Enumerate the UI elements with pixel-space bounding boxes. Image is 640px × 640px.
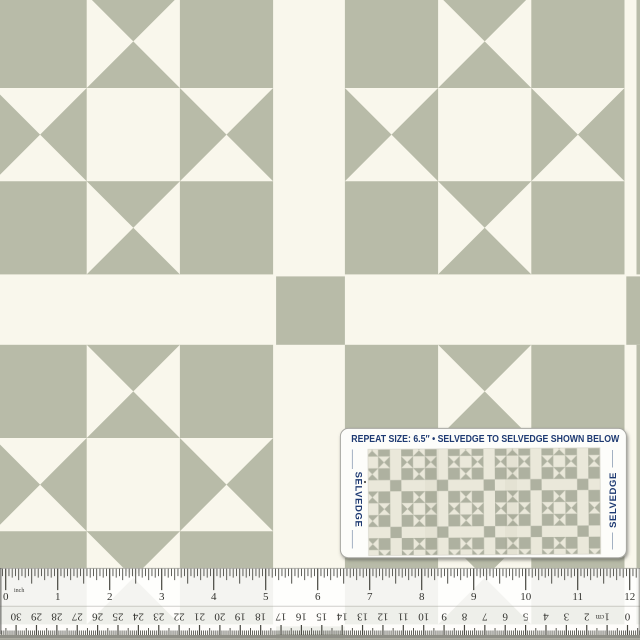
svg-text:24: 24	[132, 611, 144, 623]
svg-text:cm: cm	[595, 613, 604, 621]
svg-text:14: 14	[336, 611, 348, 623]
svg-text:27: 27	[71, 611, 83, 623]
svg-text:0: 0	[3, 591, 9, 603]
svg-text:SELVEDGE: SELVEDGE	[352, 472, 363, 528]
svg-text:0: 0	[624, 611, 630, 623]
svg-text:8: 8	[461, 611, 467, 623]
svg-text:9: 9	[441, 611, 447, 623]
svg-text:10: 10	[520, 591, 532, 603]
svg-text:2: 2	[584, 611, 590, 623]
svg-text:17: 17	[275, 611, 287, 623]
svg-text:7: 7	[367, 591, 373, 603]
svg-text:23: 23	[153, 611, 165, 623]
svg-text:19: 19	[234, 611, 246, 623]
svg-text:8: 8	[419, 591, 425, 603]
svg-text:13: 13	[357, 611, 369, 623]
svg-text:4: 4	[211, 591, 217, 603]
svg-text:20: 20	[214, 611, 226, 623]
svg-text:29: 29	[30, 611, 42, 623]
svg-text:7: 7	[482, 611, 488, 623]
svg-text:25: 25	[112, 611, 124, 623]
svg-text:3: 3	[563, 611, 569, 623]
svg-text:5: 5	[263, 591, 269, 603]
svg-text:2: 2	[107, 591, 113, 603]
svg-text:5: 5	[522, 611, 528, 623]
svg-text:1: 1	[604, 611, 610, 623]
svg-text:6: 6	[315, 591, 321, 603]
svg-text:inch: inch	[14, 588, 24, 594]
svg-text:11: 11	[398, 611, 409, 623]
svg-text:28: 28	[51, 611, 63, 623]
svg-text:30: 30	[10, 611, 22, 623]
svg-text:22: 22	[174, 611, 185, 623]
svg-text:6: 6	[502, 611, 508, 623]
svg-text:9: 9	[471, 591, 477, 603]
svg-text:4: 4	[543, 611, 549, 623]
svg-text:12: 12	[624, 591, 635, 603]
svg-text:10: 10	[418, 611, 430, 623]
svg-text:15: 15	[316, 611, 328, 623]
svg-text:21: 21	[194, 611, 205, 623]
svg-text:3: 3	[159, 591, 165, 603]
svg-text:26: 26	[92, 611, 104, 623]
svg-text:12: 12	[377, 611, 388, 623]
svg-text:18: 18	[255, 611, 267, 623]
svg-text:16: 16	[295, 611, 307, 623]
svg-text:REPEAT SIZE: 6.5″ • SELVEDGE T: REPEAT SIZE: 6.5″ • SELVEDGE TO SELVEDGE…	[351, 434, 619, 445]
svg-text:11: 11	[572, 591, 583, 603]
svg-text:SELVEDGE: SELVEDGE	[608, 472, 619, 528]
svg-text:1: 1	[55, 591, 61, 603]
